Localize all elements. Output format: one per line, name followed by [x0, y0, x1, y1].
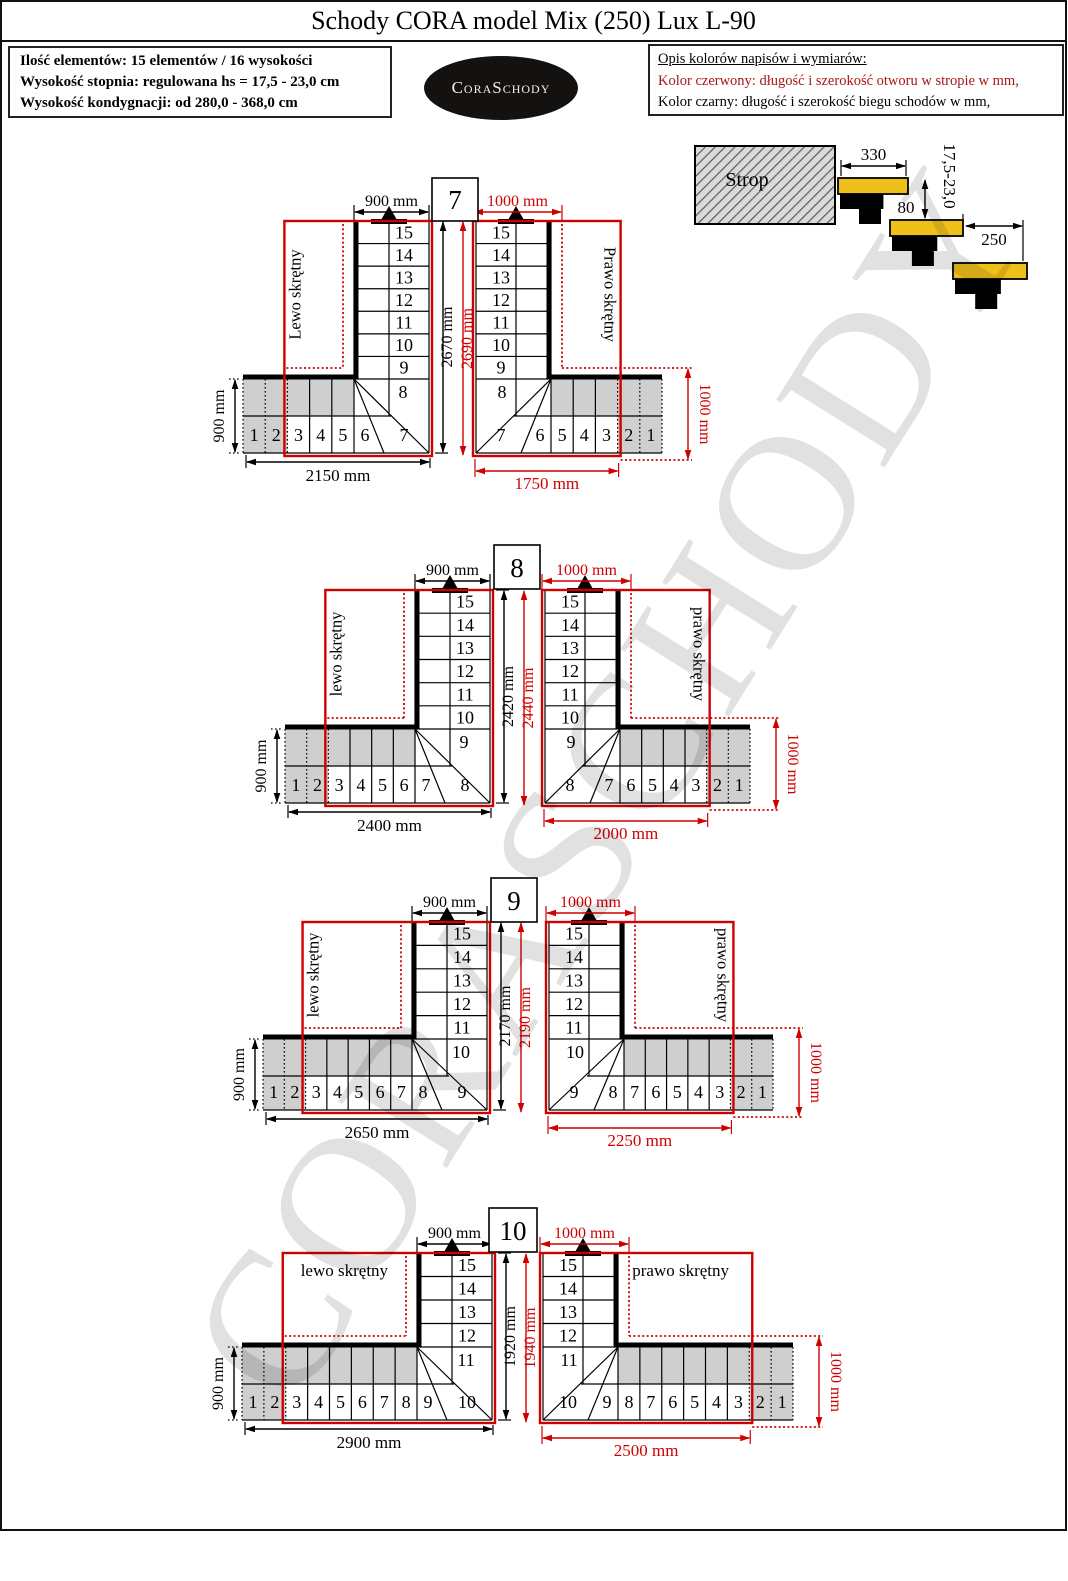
stair-variant-right-9: 123456789101514131211prawo skrętny1000 m…	[546, 894, 824, 1150]
svg-text:2: 2	[290, 1082, 299, 1102]
svg-text:11: 11	[453, 1017, 470, 1037]
svg-text:9: 9	[567, 732, 576, 752]
svg-text:1000 mm: 1000 mm	[784, 734, 801, 795]
svg-text:3: 3	[294, 425, 303, 445]
svg-text:4: 4	[356, 775, 365, 795]
svg-text:11: 11	[456, 684, 473, 704]
svg-text:2190 mm: 2190 mm	[517, 987, 534, 1048]
svg-text:6: 6	[400, 775, 409, 795]
svg-text:10: 10	[456, 707, 474, 727]
svg-text:Strop: Strop	[725, 169, 768, 191]
svg-text:8: 8	[399, 382, 408, 402]
svg-text:4: 4	[694, 1082, 703, 1102]
svg-text:1000 mm: 1000 mm	[487, 193, 548, 210]
svg-text:4: 4	[580, 425, 589, 445]
svg-text:900 mm: 900 mm	[210, 1357, 227, 1410]
svg-text:8: 8	[461, 775, 470, 795]
svg-text:1: 1	[250, 425, 259, 445]
svg-text:8: 8	[498, 382, 507, 402]
svg-text:4: 4	[670, 775, 679, 795]
stair-plan-group-7: 123456781514131211109Lewo skrętny900 mm9…	[211, 178, 713, 493]
svg-text:12: 12	[561, 661, 579, 681]
svg-text:5: 5	[648, 775, 657, 795]
svg-text:2650 mm: 2650 mm	[345, 1123, 410, 1142]
tread	[890, 220, 963, 236]
svg-text:12: 12	[395, 290, 413, 310]
svg-text:11: 11	[492, 313, 509, 333]
svg-text:2: 2	[272, 425, 281, 445]
svg-text:17,5-23,0: 17,5-23,0	[940, 143, 959, 208]
svg-text:1: 1	[269, 1082, 278, 1102]
svg-text:7: 7	[380, 1392, 389, 1412]
svg-text:9: 9	[507, 886, 521, 916]
svg-text:13: 13	[561, 638, 579, 658]
tread	[838, 178, 908, 194]
stair-plan-group-9: 123456789101514131211lewo skrętny900 mm9…	[231, 878, 824, 1150]
svg-text:11: 11	[457, 1350, 474, 1370]
svg-text:2400 mm: 2400 mm	[357, 816, 422, 835]
svg-text:2500 mm: 2500 mm	[614, 1441, 679, 1460]
svg-text:900 mm: 900 mm	[231, 1048, 248, 1101]
svg-text:2670 mm: 2670 mm	[439, 306, 456, 367]
svg-text:13: 13	[559, 1302, 577, 1322]
svg-text:15: 15	[453, 924, 471, 944]
svg-text:12: 12	[559, 1325, 577, 1345]
stair-variant-right-8: 123456789151413121110prawo skrętny1000 m…	[542, 562, 801, 843]
svg-text:12: 12	[456, 661, 474, 681]
svg-text:80: 80	[898, 198, 915, 217]
svg-text:15: 15	[561, 592, 579, 612]
svg-text:250: 250	[981, 230, 1007, 249]
svg-text:1: 1	[248, 1392, 257, 1412]
svg-text:1000 mm: 1000 mm	[807, 1042, 824, 1103]
svg-text:13: 13	[492, 267, 510, 287]
svg-text:1000 mm: 1000 mm	[556, 562, 617, 579]
svg-text:9: 9	[570, 1082, 579, 1102]
svg-text:5: 5	[690, 1392, 699, 1412]
svg-text:8: 8	[510, 553, 524, 583]
svg-text:900 mm: 900 mm	[253, 739, 270, 792]
svg-text:4: 4	[314, 1392, 323, 1412]
svg-text:14: 14	[453, 947, 471, 967]
svg-text:prawo skrętny: prawo skrętny	[632, 1261, 729, 1280]
svg-text:4: 4	[333, 1082, 342, 1102]
svg-text:15: 15	[492, 222, 510, 242]
stair-variant-right-7: 123456781514131211109Prawo skrętny1000 m…	[473, 193, 713, 493]
svg-text:6: 6	[361, 425, 370, 445]
svg-text:3: 3	[691, 775, 700, 795]
svg-text:1: 1	[758, 1082, 767, 1102]
svg-text:lewo skrętny: lewo skrętny	[326, 611, 345, 697]
svg-text:4: 4	[712, 1392, 721, 1412]
stair-variant-left-8: 123456789151413121110lewo skrętny900 mm9…	[253, 562, 493, 835]
svg-text:6: 6	[651, 1082, 660, 1102]
svg-text:Lewo skrętny: Lewo skrętny	[285, 249, 304, 340]
svg-text:14: 14	[395, 245, 413, 265]
svg-text:1: 1	[735, 775, 744, 795]
svg-text:15: 15	[559, 1255, 577, 1275]
svg-text:8: 8	[624, 1392, 633, 1412]
svg-text:7: 7	[497, 425, 506, 445]
svg-text:9: 9	[603, 1392, 612, 1412]
svg-text:2150 mm: 2150 mm	[306, 466, 371, 485]
svg-text:10: 10	[458, 1392, 476, 1412]
svg-text:prawo skrętny: prawo skrętny	[690, 607, 709, 702]
svg-text:14: 14	[561, 615, 579, 635]
svg-text:14: 14	[492, 245, 510, 265]
svg-text:3: 3	[292, 1392, 301, 1412]
svg-text:14: 14	[456, 615, 474, 635]
svg-text:15: 15	[456, 592, 474, 612]
svg-text:10: 10	[566, 1042, 584, 1062]
svg-text:7: 7	[630, 1082, 639, 1102]
svg-text:15: 15	[565, 924, 583, 944]
svg-text:2440 mm: 2440 mm	[520, 667, 537, 728]
svg-text:13: 13	[453, 971, 471, 991]
svg-text:3: 3	[335, 775, 344, 795]
svg-text:1: 1	[291, 775, 300, 795]
side-view-detail: Strop3308017,5-23,0250	[695, 143, 1027, 309]
svg-text:2250 mm: 2250 mm	[607, 1131, 672, 1150]
svg-text:7: 7	[400, 425, 409, 445]
svg-text:13: 13	[456, 638, 474, 658]
svg-text:12: 12	[565, 994, 583, 1014]
svg-text:7: 7	[605, 775, 614, 795]
svg-text:1000 mm: 1000 mm	[560, 894, 621, 911]
svg-text:2000 mm: 2000 mm	[593, 824, 658, 843]
stair-plan-group-10: 123456789101115141312lewo skrętny900 mm9…	[210, 1208, 844, 1460]
svg-text:3: 3	[734, 1392, 743, 1412]
svg-text:2: 2	[270, 1392, 279, 1412]
svg-text:1000 mm: 1000 mm	[554, 1225, 615, 1242]
svg-text:2: 2	[713, 775, 722, 795]
stair-variant-right-10: 123456789101115141312prawo skrętny1000 m…	[540, 1225, 844, 1460]
svg-text:2170 mm: 2170 mm	[497, 985, 514, 1046]
svg-text:900 mm: 900 mm	[423, 894, 476, 911]
svg-text:lewo skrętny: lewo skrętny	[301, 1261, 389, 1280]
svg-text:2: 2	[624, 425, 633, 445]
svg-text:330: 330	[861, 145, 887, 164]
svg-text:6: 6	[536, 425, 545, 445]
svg-text:9: 9	[458, 1082, 467, 1102]
svg-text:2420 mm: 2420 mm	[500, 666, 517, 727]
stair-variant-left-10: 123456789101115141312lewo skrętny900 mm9…	[210, 1225, 495, 1452]
svg-text:13: 13	[395, 267, 413, 287]
svg-text:lewo skrętny: lewo skrętny	[304, 932, 323, 1018]
svg-text:2: 2	[313, 775, 322, 795]
stair-diagrams: 123456781514131211109Lewo skrętny900 mm9…	[0, 0, 1068, 1532]
svg-text:13: 13	[565, 971, 583, 991]
svg-text:9: 9	[460, 732, 469, 752]
svg-text:900 mm: 900 mm	[426, 562, 479, 579]
svg-text:10: 10	[395, 335, 413, 355]
svg-text:11: 11	[560, 1350, 577, 1370]
svg-text:3: 3	[602, 425, 611, 445]
svg-text:7: 7	[422, 775, 431, 795]
stair-variant-left-7: 123456781514131211109Lewo skrętny900 mm9…	[211, 193, 432, 485]
svg-text:6: 6	[626, 775, 635, 795]
stair-variant-left-9: 123456789101514131211lewo skrętny900 mm9…	[231, 894, 490, 1142]
stair-plan-group-8: 123456789151413121110lewo skrętny900 mm9…	[253, 545, 801, 843]
svg-text:8: 8	[566, 775, 575, 795]
svg-text:1: 1	[646, 425, 655, 445]
svg-text:5: 5	[338, 425, 347, 445]
svg-text:1750 mm: 1750 mm	[514, 474, 579, 493]
tread	[953, 263, 1027, 279]
svg-text:10: 10	[500, 1216, 527, 1246]
svg-text:7: 7	[646, 1392, 655, 1412]
svg-text:12: 12	[453, 994, 471, 1014]
svg-text:9: 9	[400, 358, 409, 378]
svg-text:8: 8	[402, 1392, 411, 1412]
svg-text:14: 14	[559, 1278, 577, 1298]
svg-text:3: 3	[715, 1082, 724, 1102]
svg-text:9: 9	[497, 358, 506, 378]
svg-text:12: 12	[492, 290, 510, 310]
svg-text:6: 6	[358, 1392, 367, 1412]
svg-text:10: 10	[452, 1042, 470, 1062]
svg-text:10: 10	[492, 335, 510, 355]
svg-text:6: 6	[668, 1392, 677, 1412]
svg-text:7: 7	[397, 1082, 406, 1102]
svg-text:13: 13	[458, 1302, 476, 1322]
svg-text:11: 11	[561, 684, 578, 704]
svg-text:10: 10	[561, 707, 579, 727]
svg-text:12: 12	[458, 1325, 476, 1345]
svg-text:2690 mm: 2690 mm	[459, 308, 476, 369]
svg-text:prawo skrętny: prawo skrętny	[713, 928, 732, 1023]
svg-text:5: 5	[336, 1392, 345, 1412]
svg-text:6: 6	[376, 1082, 385, 1102]
svg-text:10: 10	[559, 1392, 577, 1412]
svg-text:5: 5	[354, 1082, 363, 1102]
svg-text:5: 5	[673, 1082, 682, 1102]
svg-text:1940 mm: 1940 mm	[522, 1307, 539, 1368]
svg-text:15: 15	[395, 222, 413, 242]
svg-text:7: 7	[448, 185, 462, 215]
svg-text:11: 11	[565, 1017, 582, 1037]
svg-text:1000 mm: 1000 mm	[696, 384, 713, 445]
svg-text:900 mm: 900 mm	[211, 389, 228, 442]
svg-text:2900 mm: 2900 mm	[337, 1433, 402, 1452]
svg-text:14: 14	[565, 947, 583, 967]
svg-text:5: 5	[558, 425, 567, 445]
svg-text:11: 11	[395, 313, 412, 333]
svg-text:4: 4	[316, 425, 325, 445]
svg-text:1000 mm: 1000 mm	[827, 1351, 844, 1412]
svg-text:8: 8	[419, 1082, 428, 1102]
svg-text:1: 1	[778, 1392, 787, 1412]
svg-text:14: 14	[458, 1278, 476, 1298]
svg-text:Prawo skrętny: Prawo skrętny	[601, 247, 620, 343]
svg-text:900 mm: 900 mm	[428, 1225, 481, 1242]
svg-text:3: 3	[312, 1082, 321, 1102]
svg-text:2: 2	[737, 1082, 746, 1102]
svg-text:9: 9	[424, 1392, 433, 1412]
svg-text:5: 5	[378, 775, 387, 795]
svg-text:1920 mm: 1920 mm	[502, 1306, 519, 1367]
svg-text:2: 2	[756, 1392, 765, 1412]
svg-text:15: 15	[458, 1255, 476, 1275]
svg-text:900 mm: 900 mm	[365, 193, 418, 210]
svg-text:8: 8	[609, 1082, 618, 1102]
